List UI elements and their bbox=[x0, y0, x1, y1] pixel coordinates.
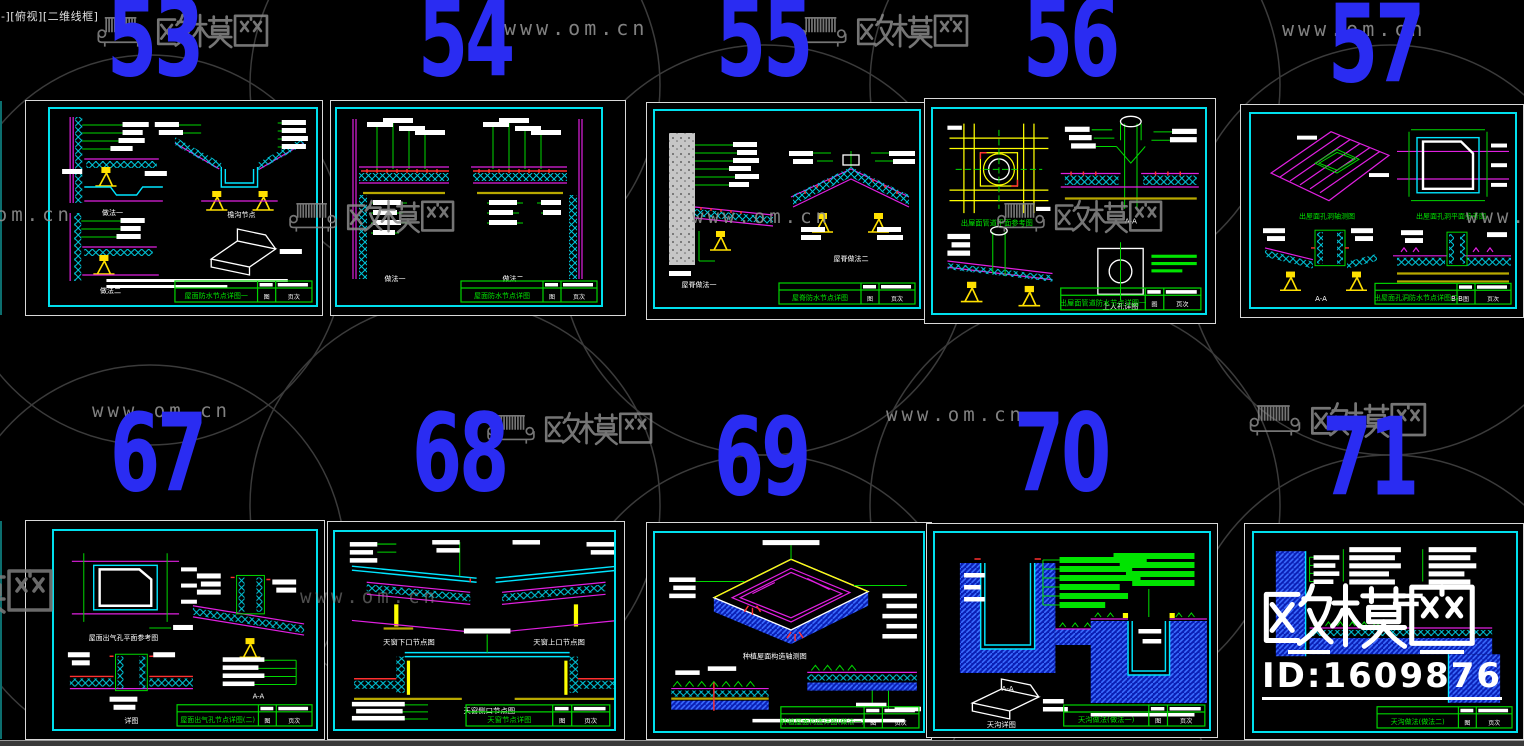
detail-caption: 屋脊做法一 bbox=[682, 280, 717, 289]
omw-logo-text bbox=[0, 566, 55, 616]
watermark-brand bbox=[996, 198, 1164, 235]
watermark-brand bbox=[796, 12, 970, 50]
sheet-title: 出屋面孔洞防水节点详图二 bbox=[1374, 293, 1458, 302]
tblock-cell: 页次 bbox=[1176, 301, 1188, 309]
sheet-number-67: 67 bbox=[110, 399, 204, 507]
omw-logo-text bbox=[544, 410, 654, 447]
title-block: 屋面防水节点详图一 图 页次 bbox=[175, 281, 312, 302]
sofa-icon bbox=[288, 201, 338, 233]
title-block: 天沟做法(做法二) 图 页次 bbox=[1377, 707, 1512, 728]
tblock-cell: 页次 bbox=[288, 293, 300, 301]
sheet-number-57: 57 bbox=[1328, 0, 1422, 98]
viewport-controls[interactable]: -][俯视][二维线框] bbox=[1, 8, 98, 24]
tblock-cell: 图 bbox=[264, 294, 270, 301]
sheet-title: 种植屋面构造详图(做法一) bbox=[781, 717, 865, 726]
sheet-68: 天窗下口节点图 天窗上口节点图 天窗侧口节点图 天窗节点详图 图 页次 bbox=[327, 521, 625, 740]
detail-caption: 屋面出气孔平面参考图 bbox=[89, 633, 158, 642]
detail-caption: 种植屋面构造轴测图 bbox=[743, 651, 807, 660]
omw-logo-text bbox=[1262, 580, 1478, 652]
sheet-70: A-A 天沟详图 天沟做法(做法一) 图 页次 bbox=[926, 523, 1218, 738]
sheet-68-drawing: 天窗下口节点图 天窗上口节点图 天窗侧口节点图 天窗节点详图 图 页次 bbox=[335, 532, 614, 729]
tblock-cell: 图 bbox=[1463, 296, 1469, 303]
sheet-number-55: 55 bbox=[716, 0, 810, 92]
sheet-53-drawing: 做法一 做法二 檐沟节点 屋面防水节点详图一 bbox=[50, 109, 316, 305]
detail-caption: 天沟详图 bbox=[987, 720, 1016, 729]
tblock-cell: 图 bbox=[559, 718, 565, 725]
sheet-67-drawing: 屋面出气孔平面参考图 A-A 详图 屋面出气孔节点详图(二) 图 页次 bbox=[54, 531, 316, 729]
detail-caption: 檐沟节点 bbox=[227, 210, 255, 219]
sheet-title: 屋脊防水节点详图 bbox=[792, 293, 848, 302]
sheet-title: 天沟做法(做法二) bbox=[1391, 717, 1445, 726]
tblock-cell: 页次 bbox=[584, 717, 597, 725]
tblock-cell: 页次 bbox=[895, 719, 907, 727]
tblock-cell: 页次 bbox=[1488, 719, 1500, 727]
detail-caption: A-A bbox=[1315, 295, 1327, 303]
watermark-url: www.om.cn bbox=[0, 204, 73, 226]
title-block: 出屋面管道防水节点详图一 图 页次 bbox=[1060, 288, 1201, 310]
sheet-title: 天窗节点详图 bbox=[487, 715, 531, 724]
omw-logo-text bbox=[856, 12, 970, 50]
sofa-icon bbox=[996, 201, 1046, 233]
watermark-brand-partial bbox=[0, 566, 55, 616]
detail-caption: 做法二 bbox=[503, 274, 524, 283]
tblock-cell: 页次 bbox=[573, 293, 585, 301]
tblock-cell: 页次 bbox=[1180, 717, 1192, 725]
omw-logo-text bbox=[346, 198, 456, 235]
watermark-url: www.om.cn bbox=[504, 16, 648, 40]
detail-caption: 天窗上口节点图 bbox=[533, 638, 585, 647]
tblock-cell: 图 bbox=[549, 294, 555, 301]
watermark-url: www.om.cn bbox=[692, 206, 831, 228]
detail-caption: 做法一 bbox=[102, 208, 123, 217]
sheet-69-drawing: 种植屋面构造轴测图 种植屋面构造详图(做法一) 图 页次 bbox=[655, 533, 923, 731]
tblock-cell: 图 bbox=[264, 718, 270, 725]
sheet-number-68: 68 bbox=[412, 399, 506, 507]
tblock-cell: 图 bbox=[867, 296, 873, 303]
detail-caption: 天窗侧口节点图 bbox=[463, 706, 515, 715]
sheet-number-69: 69 bbox=[714, 403, 808, 511]
watermark-underline bbox=[1288, 650, 1330, 654]
tblock-cell: 页次 bbox=[891, 295, 903, 303]
detail-caption: 出屋面孔洞轴测图 bbox=[1299, 211, 1355, 220]
omw-logo-text bbox=[1054, 198, 1164, 235]
tblock-cell: 图 bbox=[1464, 720, 1470, 727]
sheet-title: 屋面防水节点详图 bbox=[474, 291, 530, 300]
sheet-number-53: 53 bbox=[107, 0, 201, 92]
title-block: 屋脊防水节点详图 图 页次 bbox=[779, 283, 915, 304]
sheet-number-54: 54 bbox=[418, 0, 512, 92]
detail-caption: 做法一 bbox=[385, 274, 406, 283]
sheet-title: 出屋面管道防水节点详图一 bbox=[1060, 299, 1146, 308]
big-watermark-id: ID:1609876 bbox=[1262, 656, 1502, 700]
sheet-number-70: 70 bbox=[1014, 399, 1108, 507]
sheet-title: 屋面出气孔节点详图(二) bbox=[180, 715, 255, 724]
detail-caption: 天窗下口节点图 bbox=[383, 638, 435, 647]
title-block: 种植屋面构造详图(做法一) 图 页次 bbox=[781, 707, 919, 728]
watermark-url: www.om.cn bbox=[886, 404, 1025, 426]
detail-caption: A-A bbox=[253, 693, 265, 701]
sheet-70-drawing: A-A 天沟详图 天沟做法(做法一) 图 页次 bbox=[935, 533, 1209, 729]
tblock-cell: 图 bbox=[1155, 718, 1161, 725]
window-edge-bar bbox=[0, 740, 1524, 746]
watermark-underline bbox=[1420, 650, 1464, 654]
sofa-icon bbox=[1248, 403, 1302, 437]
detail-caption: 详图 bbox=[124, 716, 138, 725]
big-watermark-logo bbox=[1262, 580, 1478, 656]
watermark-url: www.om.cn bbox=[300, 586, 439, 608]
sheet-69: 种植屋面构造轴测图 种植屋面构造详图(做法一) 图 页次 bbox=[646, 522, 932, 740]
tblock-cell: 页次 bbox=[288, 717, 300, 725]
title-block: 屋面出气孔节点详图(二) 图 页次 bbox=[177, 705, 312, 726]
watermark-brand bbox=[288, 198, 456, 235]
title-block: 出屋面孔洞防水节点详图二 图 页次 bbox=[1374, 283, 1511, 304]
sheet-67: 屋面出气孔平面参考图 A-A 详图 屋面出气孔节点详图(二) 图 页次 bbox=[25, 520, 325, 740]
watermark-brand bbox=[486, 410, 654, 447]
tblock-cell: 图 bbox=[1151, 302, 1157, 309]
sheet-title: 天沟做法(做法一) bbox=[1078, 715, 1135, 724]
detail-caption: 屋脊做法二 bbox=[834, 254, 869, 263]
title-block: 屋面防水节点详图 图 页次 bbox=[461, 281, 597, 302]
cutoff-sheet-edge-bottom bbox=[0, 521, 2, 739]
sheet-title: 屋面防水节点详图一 bbox=[185, 291, 248, 300]
tblock-cell: 图 bbox=[870, 720, 876, 727]
sheet-number-71: 71 bbox=[1322, 403, 1416, 511]
sheet-number-56: 56 bbox=[1023, 0, 1117, 92]
watermark-url: www.om.cn bbox=[1466, 206, 1524, 228]
tblock-cell: 页次 bbox=[1487, 295, 1499, 303]
